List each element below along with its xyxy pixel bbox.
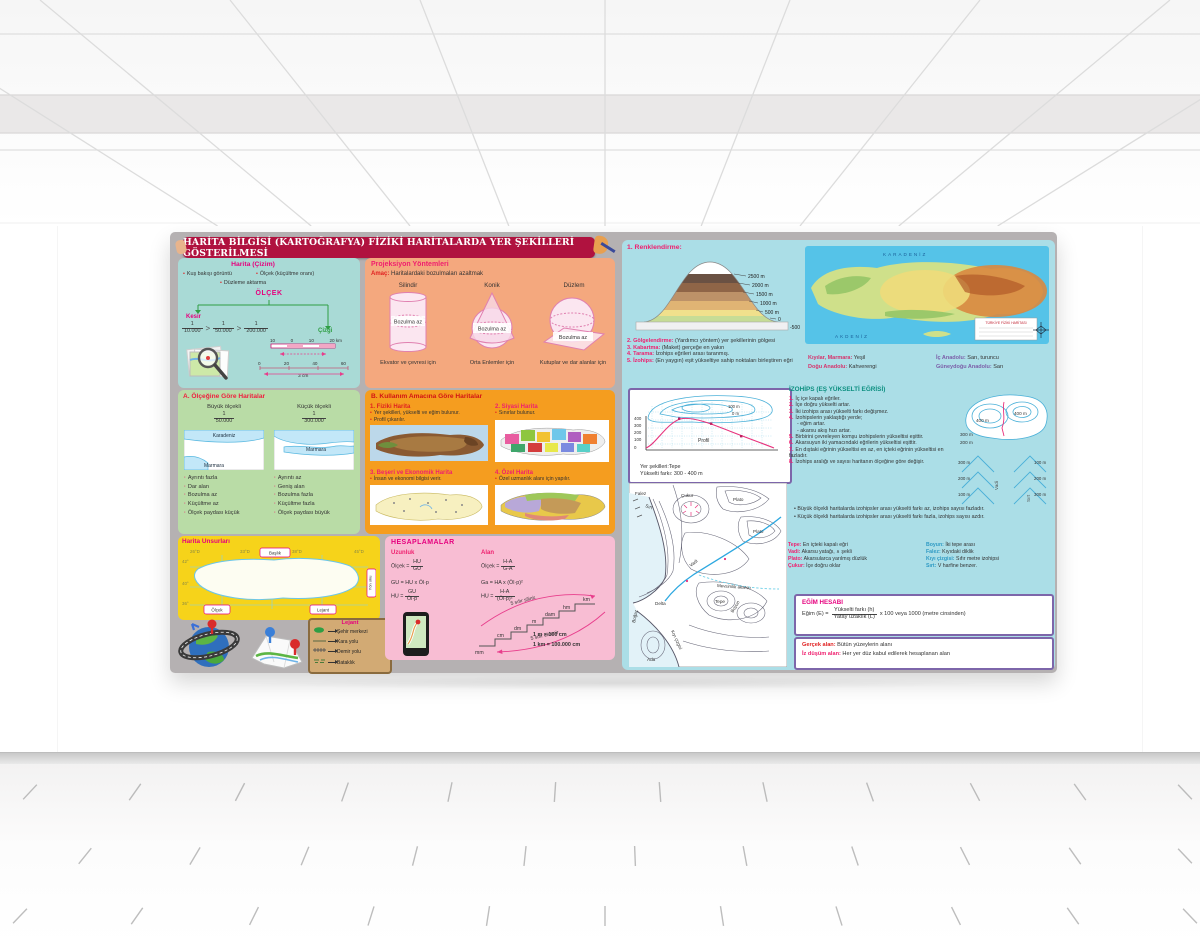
bullet-icon: • — [183, 271, 185, 277]
list-item: Bozulma az — [188, 492, 217, 498]
profil-label: Profil — [698, 438, 709, 444]
svg-text:Lejant: Lejant — [317, 608, 330, 613]
political-map-thumbnail — [495, 420, 609, 462]
contour-value: 0 m — [732, 411, 739, 416]
cizim-bullet-2: Ölçek (küçültme oranı) — [260, 271, 314, 277]
fiziki-harita-section: 1. Fiziki Harita •Yer şekilleri, yükselt… — [370, 404, 490, 466]
fraction-3: 1200.000 — [244, 322, 268, 334]
unit-label: km — [583, 597, 590, 603]
distortion-label: Bozulma az — [478, 327, 506, 333]
railway-symbol — [313, 647, 326, 653]
contour-value: 100 m — [728, 404, 740, 409]
poster-title: HARİTA BİLGİSİ (KARTOĞRAFYA) FİZİKİ HARİ… — [183, 237, 595, 259]
unit-note: 1 km = 100.000 cm — [533, 642, 580, 648]
tanimlar-left: Tepe: En içteki kapalı eğri Vadi: Akarsu… — [788, 542, 920, 570]
contour-mark: 200 m — [958, 476, 971, 481]
distortion-label: Bozulma az — [559, 335, 587, 341]
list-item: Küçültme az — [188, 501, 219, 507]
karadeniz-marmara-map: Karadeniz Marmara — [184, 430, 264, 470]
izohips-scale-note-2: • Küçük ölçekli haritalarda izohipsler a… — [794, 514, 1052, 520]
unsurlar-title: Harita Unsurları — [182, 538, 230, 545]
unit-label: m — [532, 619, 536, 625]
kesir-fractions: 110.000 > 150.000 > 1200.000 — [182, 322, 268, 334]
harita-unsurlari-card: Harita Unsurları 26°D 33°D 38°D 45°D 42°… — [178, 536, 380, 620]
color-key-item: Doğu Anadolu: Kahverengi — [808, 363, 877, 371]
elevation-label: -500 — [790, 325, 800, 331]
ozel-harita-section: 4. Özel Harita •Özel uzmanlık alanı için… — [495, 470, 611, 530]
profil-diagram: 100 m 0 m 400 300 200 100 0 Profil — [632, 392, 788, 458]
list-item: Ölçek paydası küçük — [188, 510, 240, 516]
cizim-bullet-3: Düzleme aktarma — [224, 280, 266, 286]
lejant-box: Lejant — [310, 605, 336, 614]
alan-label: Alan — [481, 550, 494, 556]
conic-projection-diagram: Bozulma az — [457, 290, 527, 358]
method-caption: Ekvator ve çevresi için — [367, 360, 449, 367]
fraction-2: 150.000 — [213, 322, 234, 334]
axis-tick: 400 — [634, 416, 642, 421]
sea-label: AKDENİZ — [835, 333, 869, 339]
kucuk-olcekli-heading: Küçük ölçekli — [272, 404, 356, 410]
greater-icon: > — [237, 324, 242, 333]
elevation-label: 500 m — [765, 310, 779, 316]
bullet-icon: • — [220, 280, 222, 286]
map-label: Çukur — [681, 493, 694, 498]
phone-map-screen — [406, 616, 426, 648]
coord-label: 36° — [182, 601, 189, 606]
izohips-list: 1.İç içe kapalı eğriler. 2.İçe doğru yük… — [789, 396, 959, 466]
room-scene: { "poster": { "title": "HARİTA BİLGİSİ (… — [0, 0, 1200, 946]
profil-caption-2: Yükselti farkı: 300 - 400 m — [640, 471, 790, 477]
poster-title-bar: HARİTA BİLGİSİ (KARTOĞRAFYA) FİZİKİ HARİ… — [183, 237, 595, 258]
yon-oku-box: Yön oku — [367, 569, 376, 597]
axis-tick: 300 — [634, 423, 642, 428]
harita-cizim-title: Harita (Çizim) — [178, 261, 328, 268]
map-label: Tepe — [715, 599, 725, 604]
coord-label: 42° — [182, 559, 189, 564]
alan-tanimlari-box: Gerçek alan: Bütün yüzeylerin alanı İz d… — [794, 637, 1054, 670]
elevation-label: 2000 m — [752, 283, 769, 289]
turkey-physical-map: KARADENİZ AKDENİZ TÜRKİYE FİZİKİ HARİTAS… — [805, 246, 1049, 344]
buyuk-olcekli-heading: Büyük ölçekli — [182, 404, 266, 410]
elevation-label: 1500 m — [756, 292, 773, 298]
contour-mark: 300 m — [958, 460, 971, 465]
arrow-icon — [328, 641, 335, 642]
projeksiyon-card: Projeksiyon Yöntemleri Amaç: Haritalarda… — [365, 258, 615, 388]
renklendirme-title: 1. Renklendirme: — [627, 244, 682, 251]
projeksiyon-title: Projeksiyon Yöntemleri — [371, 261, 449, 268]
amac-label: Amaç: — [371, 271, 389, 277]
vadi-label: Vadi — [994, 481, 999, 490]
unit-label: cm — [497, 633, 504, 639]
formula: GU = HU x Öl·p — [391, 580, 429, 586]
plane-projection-diagram: Bozulma az — [539, 290, 609, 358]
formula: Ga = HA x (Öl·p)² — [481, 580, 523, 586]
method-caption: Orta Enlemler için — [453, 360, 531, 367]
izohips-item: 8.İzohips aralığı ve sayısı haritanın öl… — [789, 459, 959, 465]
formula: Ölçek = HUGU — [391, 560, 423, 572]
olcek-box: Ölçek — [204, 605, 230, 614]
contour-mark: 300 m — [1034, 492, 1047, 497]
map-label: Plato — [733, 497, 744, 502]
izohips-title: İZOHİPS (EŞ YÜKSELTİ EĞRİSİ) — [789, 386, 885, 393]
amac-text: Haritalardaki bozulmaları azaltmak — [391, 271, 483, 277]
list-item: Dar alan — [188, 484, 209, 490]
contour-mark: 100 m — [958, 492, 971, 497]
arrow-icon — [328, 651, 335, 652]
fraction-1: 110.000 — [182, 322, 203, 334]
formula: HU = GUÖl·p — [391, 590, 419, 602]
olcek-heading: ÖLÇEK — [178, 290, 360, 297]
section-bullet: Yer şekilleri, yükselti ve eğim bulunur. — [374, 410, 460, 416]
coord-label: 33°D — [240, 549, 250, 554]
sea-label: Karadeniz — [213, 433, 236, 439]
elevation-color-diagram: 2500 m 2000 m 1500 m 1000 m 500 m 0 -500 — [630, 256, 800, 336]
section-bullet: Özel uzmanlık alanı için yapılır. — [499, 476, 571, 482]
scale-line-graphic — [258, 366, 356, 380]
izohips-item: 7.En dıştaki eğrinin yükseltisi en az, e… — [789, 447, 959, 460]
egim-title: EĞİM HESABI — [802, 599, 1052, 606]
profil-diagram-box: 100 m 0 m 400 300 200 100 0 Profil Yer ş… — [628, 388, 792, 484]
cizgi-label: Çizgi — [318, 328, 332, 334]
color-key-item: Güneydoğu Anadolu: Sarı — [936, 363, 1003, 371]
hill-label: 300 m — [960, 432, 973, 437]
distortion-label: Bozulma az — [394, 320, 422, 326]
beseri-harita-section: 3. Beşeri ve Ekonomik Harita •İnsan ve e… — [370, 470, 490, 530]
cizim-bullet-1: Kuş bakışı görüntü — [187, 271, 232, 277]
legend-row: Kara yolu — [313, 638, 387, 648]
list-item: Ölçek paydası büyük — [278, 510, 330, 516]
globe-with-roads-icon — [178, 618, 244, 670]
izdusum-alan-row: İz düşüm alan: Her yer düz kabul edilere… — [802, 651, 1052, 657]
section-bullet: Sınırlar bulunur. — [499, 410, 536, 416]
uzunluk-label: Uzunluk — [391, 550, 414, 556]
method-item: 5. İzohips: (En yaygın) eşit yükseltiye … — [627, 358, 805, 365]
map-legend-box: TÜRKİYE FİZİKİ HARİTASI — [975, 318, 1037, 340]
cylinder-projection-diagram: Bozulma az — [373, 290, 443, 358]
city-center-symbol — [313, 627, 326, 633]
section-bullet: Profil çıkarılır. — [374, 417, 405, 423]
right-scale-fraction: 1300.000 — [302, 412, 326, 424]
hill-label: 200 m — [960, 440, 973, 445]
kullanim-card: B. Kullanım Amacına Göre Haritalar 1. Fi… — [365, 390, 615, 534]
axis-tick: 200 — [634, 430, 642, 435]
map-label: Delta — [655, 601, 666, 606]
color-key-item: Kıyılar, Marmara: Yeşil — [808, 354, 865, 362]
map-label: Plato — [753, 529, 764, 534]
economic-map-thumbnail — [370, 485, 488, 525]
vadi-sirt-diagram: 300 m 200 m 100 m Vadi 100 m 200 m 300 m… — [958, 450, 1052, 514]
kesir-label: Kesir — [186, 314, 201, 320]
section-bullet: İnsan ve ekonomi bilgisi verir. — [374, 476, 442, 482]
arrow-icon — [328, 662, 335, 663]
stairs-up-note: 5 sıfır silinir. — [510, 595, 537, 607]
list-item: Geniş alan — [278, 484, 305, 490]
unit-note: 1 m = 100 cm — [533, 632, 567, 638]
left-scale-fraction: 150.000 — [214, 412, 235, 424]
method-item: 2. Gölgelendirme: (Yardımcı yöntem) yer … — [627, 338, 805, 345]
arrow-icon — [328, 631, 335, 632]
legend-row: Şehir merkezi — [313, 627, 387, 638]
map-label: Ada — [647, 657, 656, 662]
special-map-thumbnail — [495, 485, 609, 525]
bullet-icon: • — [256, 271, 258, 277]
sea-label: KARADENİZ — [883, 251, 927, 257]
color-key-item: İç Anadolu: Sarı, turuncu — [936, 354, 999, 362]
map-label: Falez — [635, 491, 647, 496]
harita-cizim-card: Harita (Çizim) •Kuş bakışı görüntü •Ölçe… — [178, 258, 360, 388]
marmara-map: Marmara — [274, 430, 354, 470]
poster-shadow — [240, 676, 990, 690]
right-wall-corner — [1142, 226, 1143, 752]
olcegine-gore-card: A. Ölçeğine Göre Haritalar Büyük ölçekli… — [178, 390, 360, 534]
contour-map-diagram: Falez Sırt Çukur Plato Plato Vadi Mevsim… — [629, 483, 787, 667]
hesaplamalar-card: HESAPLAMALAR Uzunluk Alan Ölçek = HUGU G… — [385, 536, 615, 660]
sea-label: Marmara — [306, 447, 326, 453]
elevation-label: 0 — [778, 317, 781, 323]
gercek-alan-row: Gerçek alan: Bütün yüzeylerin alanı — [802, 642, 1052, 648]
map-legend-title: TÜRKİYE FİZİKİ HARİTASI — [985, 320, 1026, 325]
scale-bar-graphic — [270, 343, 356, 359]
baslik-box: Başlık — [260, 548, 290, 557]
formula: Ölçek = H-AG-A — [481, 560, 515, 572]
svg-text:Ölçek: Ölçek — [211, 608, 223, 613]
lejant-legend-box: Lejant Şehir merkezi Kara yolu Demir yol… — [308, 618, 392, 674]
contour-mark: 200 m — [1034, 476, 1047, 481]
smartphone-icon — [403, 612, 429, 656]
hill-label: 400 m — [1014, 411, 1027, 416]
greater-icon: > — [206, 324, 211, 333]
svg-text:Yön oku: Yön oku — [368, 576, 373, 591]
list-item: Bozulma fazla — [278, 492, 313, 498]
method-caption: Kutuplar ve dar alanlar için — [533, 360, 613, 367]
coord-label: 26°D — [190, 549, 200, 554]
siyasi-harita-section: 2. Siyasi Harita •Sınırlar bulunur. — [495, 404, 611, 467]
coord-label: 45°D — [354, 549, 364, 554]
unit-label: mm — [475, 650, 484, 656]
contour-mark: 100 m — [1034, 460, 1047, 465]
turkey-outline-map: 26°D 33°D 38°D 45°D 42° 40° 36° Başlık Ö… — [182, 547, 376, 617]
legend-row: Bataklık — [313, 658, 387, 669]
unit-label: hm — [563, 605, 570, 611]
unit-label: dm — [514, 626, 521, 632]
hesaplamalar-title: HESAPLAMALAR — [391, 539, 455, 546]
hill-label: 400 m — [976, 418, 989, 423]
floor — [0, 764, 1200, 946]
coord-label: 38°D — [292, 549, 302, 554]
ceiling-grid — [0, 0, 1200, 226]
road-symbol — [313, 639, 326, 643]
kullanim-title: B. Kullanım Amacına Göre Haritalar — [371, 393, 482, 400]
physical-map-thumbnail — [370, 425, 488, 461]
unit-label: dam — [545, 612, 555, 618]
elevation-label: 2500 m — [748, 274, 765, 280]
ceiling — [0, 0, 1200, 226]
magnifier-maps-icon — [182, 334, 238, 386]
sirt-label: Sırt — [1026, 494, 1031, 502]
list-item: Ayrıntı fazla — [188, 475, 217, 481]
method-name: Silindir — [373, 282, 443, 289]
olcegine-title: A. Ölçeğine Göre Haritalar — [183, 393, 265, 400]
left-wall-corner — [57, 226, 58, 752]
list-item: Küçültme fazla — [278, 501, 315, 507]
axis-tick: 0 — [634, 445, 637, 450]
axis-tick: 100 — [634, 437, 642, 442]
method-name: Düzlem — [539, 282, 609, 289]
tanimlar-right: Boyun: İki tepe arası Falez: Kıyıdaki di… — [926, 542, 1054, 570]
legend-row: Demir yolu — [313, 647, 387, 658]
profil-caption-1: Yer şekilleri:Tepe — [640, 464, 790, 470]
marsh-symbol — [313, 658, 326, 664]
egim-hesabi-box: EĞİM HESABI Eğim (E) = Yükselti farkı (h… — [794, 594, 1054, 636]
sea-label: Marmara — [204, 463, 224, 469]
svg-text:Başlık: Başlık — [269, 551, 282, 556]
poster: HARİTA BİLGİSİ (KARTOĞRAFYA) FİZİKİ HARİ… — [170, 232, 1057, 673]
egim-formula: Eğim (E) = Yükselti farkı (h)Yatay uzakl… — [802, 608, 1052, 621]
method-name: Konik — [457, 282, 527, 289]
folded-map-with-pins-icon — [248, 622, 306, 670]
elevation-label: 1000 m — [760, 301, 777, 307]
coord-label: 40° — [182, 581, 189, 586]
list-item: Ayrıntı az — [278, 475, 302, 481]
yer-sekilleri-card: 1. Renklendirme: 2500 m 2000 m 1 — [622, 240, 1055, 670]
floor-tile-marks — [0, 764, 1200, 946]
